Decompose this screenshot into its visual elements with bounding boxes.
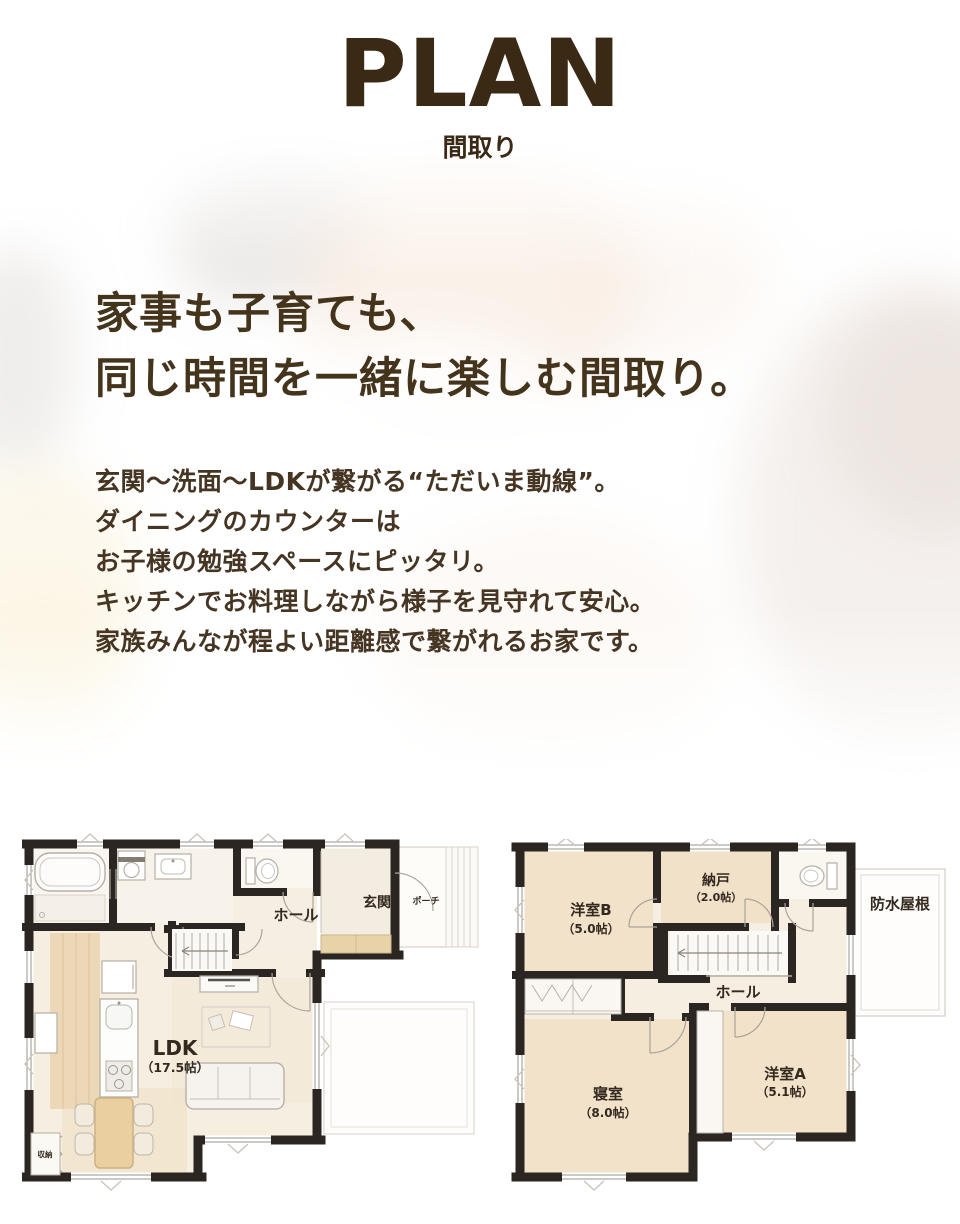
- label-storeroom: 納戸: [702, 872, 730, 889]
- floor-plan-2f: 洋室B （5.0帖） 納戸 （2.0帖） 防水屋根 ホール 寝室 （8.0帖） …: [510, 839, 950, 1224]
- vanity-sink-icon: [155, 854, 191, 879]
- dining-table-icon: [95, 1098, 133, 1168]
- label-storeroom-size: （2.0帖）: [690, 890, 743, 904]
- kitchen-sink-icon: [106, 1005, 132, 1029]
- label-roof: 防水屋根: [870, 895, 930, 913]
- label-room-b: 洋室B: [570, 901, 611, 919]
- label-entrance: 玄関: [363, 894, 391, 911]
- intro-line: お子様の勉強スペースにピッタリ。: [95, 542, 655, 582]
- intro-line: 家族みんなが程よい距離感で繋がれるお家です。: [95, 622, 655, 662]
- label-storage: 収納: [38, 1149, 53, 1159]
- intro-heading-line1: 家事も子育ても、: [95, 282, 754, 347]
- intro-line: ダイニングのカウンターは: [95, 502, 655, 542]
- label-ldk-size: （17.5帖）: [141, 1060, 209, 1075]
- label-ldk: LDK: [153, 1036, 199, 1060]
- label-room-b-size: （5.0帖）: [562, 921, 619, 936]
- page-title: PLAN: [0, 28, 960, 122]
- room-a-closet: [697, 1011, 723, 1133]
- label-hall-2f: ホール: [715, 983, 760, 1001]
- intro-line: キッチンでお料理しながら様子を見守れて安心。: [95, 582, 655, 622]
- floor-plan-1f: ホール 玄関 ポーチ LDK （17.5帖） 収納: [22, 833, 480, 1224]
- bedroom-closet: [525, 979, 621, 1014]
- page-subtitle: 間取り: [0, 128, 960, 164]
- roof-outline: [855, 869, 945, 1016]
- stairs-1f: [172, 929, 232, 971]
- intro-line: 玄関〜洗面〜LDKが繋がる“ただいま動線”。: [95, 462, 655, 502]
- label-bedroom: 寝室: [593, 1085, 623, 1103]
- stairs-2f: [670, 931, 792, 976]
- label-hall-1f: ホール: [273, 906, 318, 924]
- photo-blob: [830, 300, 960, 530]
- terrace-outline: [324, 1002, 474, 1134]
- plan-section: PLAN 間取り 家事も子育ても、 同じ時間を一緒に楽しむ間取り。 玄関〜洗面〜…: [0, 0, 960, 1224]
- tv-board-icon: [200, 976, 258, 992]
- intro-paragraph: 玄関〜洗面〜LDKが繋がる“ただいま動線”。 ダイニングのカウンターは お子様の…: [95, 462, 655, 662]
- cupboard-icon: [35, 1013, 57, 1053]
- label-bedroom-size: （8.0帖）: [579, 1105, 636, 1120]
- label-room-a-size: （5.1帖）: [756, 1084, 813, 1099]
- washing-machine-icon: [118, 851, 145, 880]
- intro-heading: 家事も子育ても、 同じ時間を一緒に楽しむ間取り。: [95, 282, 754, 412]
- bathtub-icon: [35, 853, 105, 921]
- toilet-icon-1f: [246, 858, 278, 884]
- fridge-icon: [102, 961, 136, 993]
- intro-heading-line2: 同じ時間を一緒に楽しむ間取り。: [95, 347, 754, 412]
- toilet-icon-2f: [800, 863, 837, 889]
- photo-blob: [740, 280, 960, 760]
- label-porch: ポーチ: [412, 895, 439, 907]
- photo-blob: [0, 240, 75, 470]
- label-room-a: 洋室A: [764, 1065, 806, 1083]
